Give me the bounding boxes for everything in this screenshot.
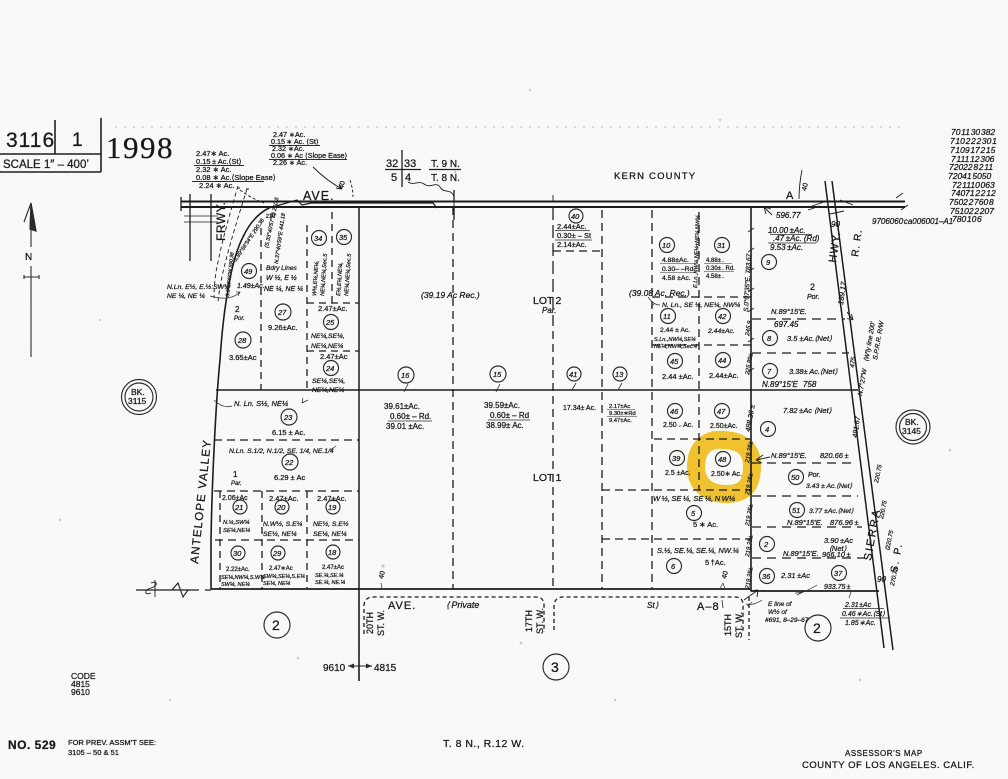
svg-text:SE¼,NE¼: SE¼,NE¼ xyxy=(223,528,250,534)
svg-text:0.30± – St: 0.30± – St xyxy=(557,231,592,240)
svg-text:3.38± Ac.⟨Net⟩: 3.38± Ac.⟨Net⟩ xyxy=(789,367,838,376)
svg-text:KERN COUNTY: KERN COUNTY xyxy=(614,171,696,182)
svg-text:Par.: Par. xyxy=(231,481,242,487)
svg-text:2.44 ± Ac.: 2.44 ± Ac. xyxy=(660,327,690,334)
svg-text:17.34± Ac.: 17.34± Ac. xyxy=(563,405,596,412)
svg-text:4.58 ±Ac.: 4.58 ±Ac. xyxy=(662,275,691,282)
svg-text:2.22±Ac.: 2.22±Ac. xyxy=(226,567,250,573)
svg-text:NE¼,SE¼,: NE¼,SE¼, xyxy=(311,333,345,340)
svg-text:W ½, SE ¼, SE ¼, N W¼: W ½, SE ¼, SE ¼, N W¼ xyxy=(653,494,735,503)
svg-text:28: 28 xyxy=(237,336,247,345)
svg-text:596.77: 596.77 xyxy=(776,211,801,220)
svg-text:T. 8 N.: T. 8 N. xyxy=(431,173,460,184)
svg-text:N.W½, S.E¼: N.W½, S.E¼ xyxy=(263,520,303,528)
svg-text:2: 2 xyxy=(235,305,240,314)
svg-text:N: N xyxy=(25,252,32,263)
svg-text:25: 25 xyxy=(325,318,335,327)
svg-text:3.65±Ac: 3.65±Ac xyxy=(229,353,257,362)
svg-text:9.53 ±Ac.: 9.53 ±Ac. xyxy=(770,243,803,252)
svg-text:39: 39 xyxy=(672,454,681,463)
svg-text:42: 42 xyxy=(718,312,727,321)
svg-text:36: 36 xyxy=(762,572,771,581)
svg-text:2.44±Ac.: 2.44±Ac. xyxy=(707,328,735,335)
svg-text:9.26±Ac.: 9.26±Ac. xyxy=(268,323,298,332)
svg-text:90: 90 xyxy=(831,220,840,229)
svg-text:11: 11 xyxy=(663,312,671,321)
svg-text:39.01 ±Ac.: 39.01 ±Ac. xyxy=(386,422,424,431)
svg-text:820.66 ±: 820.66 ± xyxy=(820,451,849,460)
svg-text:24: 24 xyxy=(325,364,334,373)
svg-text:1.85 ∗ Ac.: 1.85 ∗ Ac. xyxy=(845,620,876,627)
svg-text:3.5 ±Ac.⟨Net⟩: 3.5 ±Ac.⟨Net⟩ xyxy=(787,334,832,343)
svg-text:5 ∗ Ac.: 5 ∗ Ac. xyxy=(693,520,718,529)
svg-text:4.88±Ac.: 4.88±Ac. xyxy=(662,257,689,264)
svg-text:ST. W.: ST. W. xyxy=(734,612,744,638)
svg-text:697.45: 697.45 xyxy=(774,320,799,329)
svg-text:27: 27 xyxy=(277,308,287,317)
svg-text:FOR PREV. ASSM’T SEE:: FOR PREV. ASSM’T SEE: xyxy=(68,738,156,747)
svg-text:1: 1 xyxy=(72,130,83,151)
svg-text:32: 32 xyxy=(386,158,398,170)
svg-text:N.Ln. E½, E.½:SW¼: N.Ln. E½, E.½:SW¼ xyxy=(167,283,230,291)
svg-text:W ½, E ½: W ½, E ½ xyxy=(266,274,297,282)
svg-text:S.½, SE.¼, SE.¼, NW.¼: S.½, SE.¼, SE.¼, NW.¼ xyxy=(657,546,739,555)
svg-text:50: 50 xyxy=(791,473,800,482)
svg-text:2: 2 xyxy=(810,282,815,292)
svg-text:13: 13 xyxy=(615,370,624,379)
svg-text:90: 90 xyxy=(877,575,886,584)
svg-text:7.82 ±Ac ⟨Net⟩: 7.82 ±Ac ⟨Net⟩ xyxy=(783,406,832,415)
svg-text:N.89°15′E.: N.89°15′E. xyxy=(787,518,823,527)
svg-text:2.47±Ac: 2.47±Ac xyxy=(320,352,348,361)
svg-text:44: 44 xyxy=(718,356,726,365)
svg-text:SE¼, NE¼: SE¼, NE¼ xyxy=(313,531,347,538)
svg-text:T. 9 N.: T. 9 N. xyxy=(431,159,460,170)
svg-text:758: 758 xyxy=(803,380,817,389)
svg-text:NO. 529: NO. 529 xyxy=(8,738,56,752)
svg-text:2.31 ±Ac: 2.31 ±Ac xyxy=(780,571,810,580)
svg-text:0.30– –Rd.: 0.30– –Rd. xyxy=(662,266,695,273)
svg-text:N. Ln., SE ¼, NE¼, NW¼: N. Ln., SE ¼, NE¼, NW¼ xyxy=(662,302,741,309)
svg-text:SW¼, NE¼: SW¼, NE¼ xyxy=(221,582,250,588)
svg-text:5 †Ac.: 5 †Ac. xyxy=(705,558,726,567)
svg-text:ASSESSOR’S MAP: ASSESSOR’S MAP xyxy=(845,749,923,758)
svg-text:COUNTY OF LOS ANGELES. CAL: COUNTY OF LOS ANGELES. CALIF. xyxy=(802,760,975,771)
svg-text:AVE.: AVE. xyxy=(303,189,335,203)
svg-text:N.½,SW¼: N.½,SW¼ xyxy=(223,519,250,526)
svg-text:NE½, S.E½: NE½, S.E½ xyxy=(313,520,349,528)
svg-text:LOT 1: LOT 1 xyxy=(533,472,562,484)
svg-text:49: 49 xyxy=(244,267,253,276)
svg-text:38.99± Ac.: 38.99± Ac. xyxy=(486,421,524,430)
svg-text:39.61±Ac.: 39.61±Ac. xyxy=(384,402,420,411)
svg-text:E line of: E line of xyxy=(768,601,793,608)
svg-text:2.47±Ac: 2.47±Ac xyxy=(322,565,344,571)
svg-text:2: 2 xyxy=(813,620,821,636)
svg-text:Por.: Por. xyxy=(808,472,821,479)
svg-text:39.59±Ac.: 39.59±Ac. xyxy=(484,401,520,410)
svg-text:N. Ln. S½, NE¼: N. Ln. S½, NE¼ xyxy=(234,399,288,408)
svg-text:S.Ln.,NW¼,SE¼: S.Ln.,NW¼,SE¼ xyxy=(654,337,696,343)
svg-text:48: 48 xyxy=(718,455,727,464)
svg-text:933.75 ±: 933.75 ± xyxy=(824,584,851,591)
svg-text:(39.19 Ac Rec.): (39.19 Ac Rec.) xyxy=(421,290,480,300)
svg-text:N.89°15′E.: N.89°15′E. xyxy=(771,307,807,316)
svg-text:0.60± – Rd: 0.60± – Rd xyxy=(490,411,529,420)
svg-text:N.89°15′E.: N.89°15′E. xyxy=(771,451,807,460)
svg-text:2.47±Ac.: 2.47±Ac. xyxy=(318,304,348,313)
svg-text:19: 19 xyxy=(328,503,337,512)
svg-text:9610: 9610 xyxy=(71,687,90,697)
svg-text:SE.¼, NE.¼: SE.¼, NE.¼ xyxy=(315,580,346,586)
svg-text:20TH: 20TH xyxy=(365,612,375,634)
svg-text:2.50∗ Ac.: 2.50∗ Ac. xyxy=(711,471,742,478)
svg-text:17TH: 17TH xyxy=(524,610,534,632)
svg-text:6.29 ± Ac: 6.29 ± Ac xyxy=(274,473,305,482)
svg-text:35: 35 xyxy=(339,233,348,242)
svg-text:(39.08 Ac. Rec.): (39.08 Ac. Rec.) xyxy=(629,288,690,298)
svg-text:0.60± – Rd.: 0.60± – Rd. xyxy=(390,412,431,421)
svg-text:NE ¼, NE ¼: NE ¼, NE ¼ xyxy=(264,286,303,293)
svg-text:3.77 ±Ac.⟨Net⟩: 3.77 ±Ac.⟨Net⟩ xyxy=(809,507,854,515)
svg-text:47: 47 xyxy=(717,407,726,416)
svg-text:2.47±Ac.: 2.47±Ac. xyxy=(269,494,299,503)
svg-text:21: 21 xyxy=(234,503,243,512)
svg-text:51: 51 xyxy=(792,506,800,515)
svg-text:2.50±Ac.: 2.50±Ac. xyxy=(710,423,738,430)
svg-text:NE¼,NE¼: NE¼,NE¼ xyxy=(312,387,344,394)
svg-text:2: 2 xyxy=(272,617,280,633)
svg-text:A: A xyxy=(786,190,794,202)
svg-text:966.10 ±: 966.10 ± xyxy=(822,550,851,559)
svg-text:SE½, NE¼: SE½, NE¼ xyxy=(263,530,297,538)
svg-text:NE ¼, NE ¼: NE ¼, NE ¼ xyxy=(167,293,205,300)
svg-text:10: 10 xyxy=(662,241,671,250)
svg-text:Par.: Par. xyxy=(542,306,556,315)
svg-text:780 10 6: 780 10 6 xyxy=(952,214,982,224)
svg-text:6.15 ± Ac.: 6.15 ± Ac. xyxy=(272,428,305,437)
svg-text:33: 33 xyxy=(404,158,416,170)
svg-text:SW¼,SE¼,S.E¼: SW¼,SE¼,S.E¼ xyxy=(263,574,305,580)
svg-text:2.31 ±Ac: 2.31 ±Ac xyxy=(844,602,872,609)
svg-text:45: 45 xyxy=(670,357,679,366)
svg-text:41: 41 xyxy=(569,370,577,379)
svg-text:4815: 4815 xyxy=(374,663,397,674)
svg-text:18: 18 xyxy=(328,548,337,557)
svg-text:2.14±Ac.: 2.14±Ac. xyxy=(557,240,587,249)
svg-text:Por.: Por. xyxy=(807,294,820,301)
svg-text:⟨ Private: ⟨ Private xyxy=(446,600,479,610)
svg-text:#691, 8–29–67: #691, 8–29–67 xyxy=(765,617,809,624)
svg-text:23: 23 xyxy=(283,413,293,422)
svg-text:37: 37 xyxy=(834,569,843,578)
svg-text:SE¼,NW¼,S.W¼: SE¼,NW¼,S.W¼ xyxy=(221,575,265,581)
svg-text:2.47±Ac.: 2.47±Ac. xyxy=(317,494,347,503)
svg-text:AVE.: AVE. xyxy=(388,600,416,612)
svg-text:A–8: A–8 xyxy=(697,601,720,613)
svg-text:876.96 ±: 876.96 ± xyxy=(830,518,859,527)
svg-text:0.46 ∗ Ac.⟨St⟩: 0.46 ∗ Ac.⟨St⟩ xyxy=(842,610,885,618)
svg-text:3116: 3116 xyxy=(6,129,55,152)
svg-text:ST. W.: ST. W. xyxy=(535,608,545,634)
svg-text:NE¼,NW¼,Sec.4: NE¼,NW¼,Sec.4 xyxy=(654,344,697,350)
svg-text:4.88± .: 4.88± . xyxy=(706,258,724,264)
svg-text:3: 3 xyxy=(551,659,559,675)
svg-text:Bdry Lines: Bdry Lines xyxy=(266,265,297,272)
svg-text:4.58± .: 4.58± . xyxy=(706,274,724,280)
svg-text:5: 5 xyxy=(391,172,397,184)
svg-text:2.50 ₋ Ac.: 2.50 ₋ Ac. xyxy=(663,422,693,429)
svg-text:15: 15 xyxy=(493,370,502,379)
svg-text:1: 1 xyxy=(233,470,238,479)
svg-text:.47 ±Ac. (Rd): .47 ±Ac. (Rd) xyxy=(773,234,820,243)
svg-text:1.49±Ac.: 1.49±Ac. xyxy=(237,283,265,290)
svg-text:29: 29 xyxy=(272,549,282,558)
svg-text:1998: 1998 xyxy=(106,130,174,165)
svg-text:9.30±∗Rd: 9.30±∗Rd xyxy=(609,411,636,417)
svg-text:9610: 9610 xyxy=(323,663,346,674)
svg-text:9706060 са006001–A1: 9706060 са006001–A1 xyxy=(872,217,953,226)
svg-text:34: 34 xyxy=(314,234,322,243)
svg-text:2: 2 xyxy=(763,540,769,549)
svg-text:46: 46 xyxy=(670,407,679,416)
svg-text:16: 16 xyxy=(401,371,410,380)
svg-text:3.43 ± Ac.⟨Net⟩: 3.43 ± Ac.⟨Net⟩ xyxy=(806,482,853,490)
svg-text:NE¼,NE¼: NE¼,NE¼ xyxy=(311,343,343,350)
svg-text:40: 40 xyxy=(571,212,580,221)
svg-text:3115: 3115 xyxy=(128,396,147,406)
svg-text:ST. W.: ST. W. xyxy=(376,610,386,636)
svg-text:N.Ln. S.1/2, N.1/2, SE. 1/4, N: N.Ln. S.1/2, N.1/2, SE. 1/4, NE.1/4 xyxy=(229,448,334,455)
svg-text:W½ of: W½ of xyxy=(768,608,788,616)
svg-text:15TH: 15TH xyxy=(723,614,733,636)
svg-text:2.24 ∗ Ac.: 2.24 ∗ Ac. xyxy=(199,181,234,190)
svg-text:2.47∗Ac: 2.47∗Ac xyxy=(269,566,293,572)
svg-text:4: 4 xyxy=(765,425,769,434)
svg-text:0.30± . Rd.: 0.30± . Rd. xyxy=(706,266,735,272)
svg-text:2.5 ±Ac.: 2.5 ±Ac. xyxy=(665,470,691,477)
svg-text:22: 22 xyxy=(284,458,294,467)
svg-text:2.44±Ac.: 2.44±Ac. xyxy=(557,222,587,231)
svg-text:FRWY.: FRWY. xyxy=(214,202,228,241)
svg-text:3145: 3145 xyxy=(902,426,921,436)
svg-text:3105 – 50 & 51: 3105 – 50 & 51 xyxy=(68,748,119,757)
svg-text:T. 8 N., R.12 W.: T. 8 N., R.12 W. xyxy=(443,738,525,750)
svg-text:31: 31 xyxy=(717,241,725,250)
svg-text:SCALE 1″ – 400’: SCALE 1″ – 400’ xyxy=(3,159,89,171)
svg-text:4: 4 xyxy=(405,172,411,184)
svg-text:9.47±Ac.: 9.47±Ac. xyxy=(609,418,632,424)
svg-text:2.44±Ac.: 2.44±Ac. xyxy=(709,371,739,380)
svg-text:2.44 ±Ac.: 2.44 ±Ac. xyxy=(662,372,694,381)
svg-text:20: 20 xyxy=(276,503,286,512)
svg-text:SE.¼,SE.¼: SE.¼,SE.¼ xyxy=(315,573,344,579)
svg-text:St ⟩: St ⟩ xyxy=(647,601,659,610)
svg-text:N.89°15′E: N.89°15′E xyxy=(762,380,798,389)
svg-text:SE¼,SE¼,: SE¼,SE¼, xyxy=(312,378,345,385)
svg-text:SE¼, NE¼: SE¼, NE¼ xyxy=(263,581,291,587)
svg-text:2.17±Ac: 2.17±Ac xyxy=(609,404,630,410)
svg-text:Por.: Por. xyxy=(234,316,245,322)
svg-text:N.89°15′E.: N.89°15′E. xyxy=(783,549,819,558)
svg-text:30: 30 xyxy=(233,549,242,558)
